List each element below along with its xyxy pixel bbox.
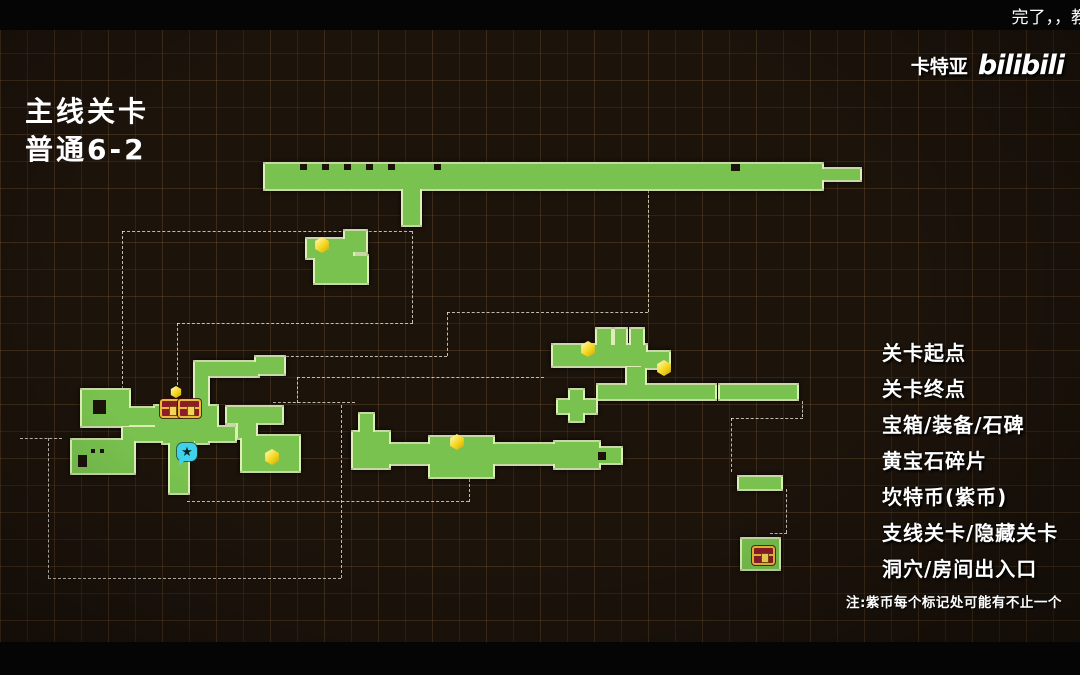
platform-notch bbox=[322, 164, 329, 170]
uploader-name: 卡特亚 bbox=[911, 52, 968, 79]
platform-notch bbox=[100, 449, 104, 453]
end-ring-icon bbox=[846, 372, 882, 402]
map-title-line1: 主线关卡 bbox=[25, 93, 149, 131]
flower-tail bbox=[179, 460, 185, 466]
platform-notch bbox=[388, 164, 395, 170]
bilibili-logo: bilibili bbox=[978, 50, 1064, 81]
platform bbox=[238, 418, 256, 438]
platform-notch bbox=[344, 164, 351, 170]
platform bbox=[615, 329, 626, 347]
purple-star-icon bbox=[846, 480, 882, 510]
platform bbox=[345, 231, 366, 252]
platform bbox=[403, 187, 420, 225]
top-letterbox-bar: 完了，，教 bbox=[0, 0, 1080, 30]
platform bbox=[360, 414, 373, 433]
platform bbox=[739, 477, 781, 489]
legend: 关卡起点 关卡终点 宝箱/装备/石碑 黄宝石碎片 坎特币(紫币) 支线关卡/隐藏… bbox=[846, 333, 1078, 611]
platform-notch bbox=[78, 455, 87, 467]
platform bbox=[123, 427, 235, 441]
platform bbox=[256, 357, 284, 374]
legend-label: 黄宝石碎片 bbox=[882, 445, 987, 474]
platform bbox=[555, 442, 599, 468]
platform bbox=[631, 329, 643, 347]
flower-star: ★ bbox=[181, 446, 193, 459]
legend-label: 宝箱/装备/石碑 bbox=[882, 409, 1025, 438]
platform-notch bbox=[434, 164, 441, 170]
chest-lock bbox=[761, 553, 769, 563]
hidden-level-icon: ★ bbox=[177, 443, 197, 461]
treasure-chest-icon bbox=[752, 546, 775, 565]
gem-icon bbox=[846, 444, 882, 474]
danmaku-comment: 完了，，教 bbox=[1012, 3, 1080, 28]
legend-label: 关卡起点 bbox=[882, 337, 966, 366]
legend-row-start: 关卡起点 bbox=[846, 333, 1078, 369]
platform bbox=[720, 385, 797, 399]
platform-notch bbox=[366, 164, 373, 170]
chest-lock bbox=[169, 406, 177, 416]
platform bbox=[597, 329, 611, 349]
platform bbox=[822, 169, 860, 180]
bottom-letterbox-bar bbox=[0, 642, 1080, 675]
legend-row-end: 关卡终点 bbox=[846, 369, 1078, 405]
map-title: 主线关卡 普通6-2 bbox=[25, 93, 149, 169]
legend-row-gem: 黄宝石碎片 bbox=[846, 441, 1078, 477]
legend-row-chest: 宝箱/装备/石碑 bbox=[846, 405, 1078, 441]
legend-label: 洞穴/房间出入口 bbox=[882, 553, 1037, 582]
start-pin-icon bbox=[846, 336, 882, 366]
legend-note: 注:紫币每个标记处可能有不止一个 bbox=[846, 591, 1078, 611]
legend-label: 支线关卡/隐藏关卡 bbox=[882, 517, 1058, 546]
chest-icon bbox=[846, 408, 882, 438]
platform-notch bbox=[598, 452, 606, 460]
hidden-level-icon bbox=[846, 516, 882, 546]
platform-notch bbox=[731, 164, 740, 171]
video-frame: ★ 完了，，教 卡特亚 bilibili 主线关卡 普通6-2 关卡起点 关卡终… bbox=[0, 0, 1080, 675]
watermark: 卡特亚 bilibili bbox=[911, 50, 1064, 81]
platform bbox=[598, 385, 715, 399]
platform bbox=[128, 408, 158, 425]
treasure-chest-icon bbox=[178, 399, 201, 418]
legend-row-door: 洞穴/房间出入口 bbox=[846, 549, 1078, 585]
legend-row-coin: 坎特币(紫币) bbox=[846, 477, 1078, 513]
legend-label: 坎特币(紫币) bbox=[882, 481, 1007, 510]
platform bbox=[315, 256, 367, 283]
legend-row-hidden: 支线关卡/隐藏关卡 bbox=[846, 513, 1078, 549]
chest-lock bbox=[187, 406, 195, 416]
legend-label: 关卡终点 bbox=[882, 373, 966, 402]
platform bbox=[558, 400, 596, 413]
platform-notch bbox=[300, 164, 307, 170]
map-title-line2: 普通6-2 bbox=[25, 131, 149, 169]
platform-notch bbox=[91, 449, 95, 453]
platform-notch bbox=[93, 400, 106, 414]
door-icon bbox=[846, 552, 882, 582]
